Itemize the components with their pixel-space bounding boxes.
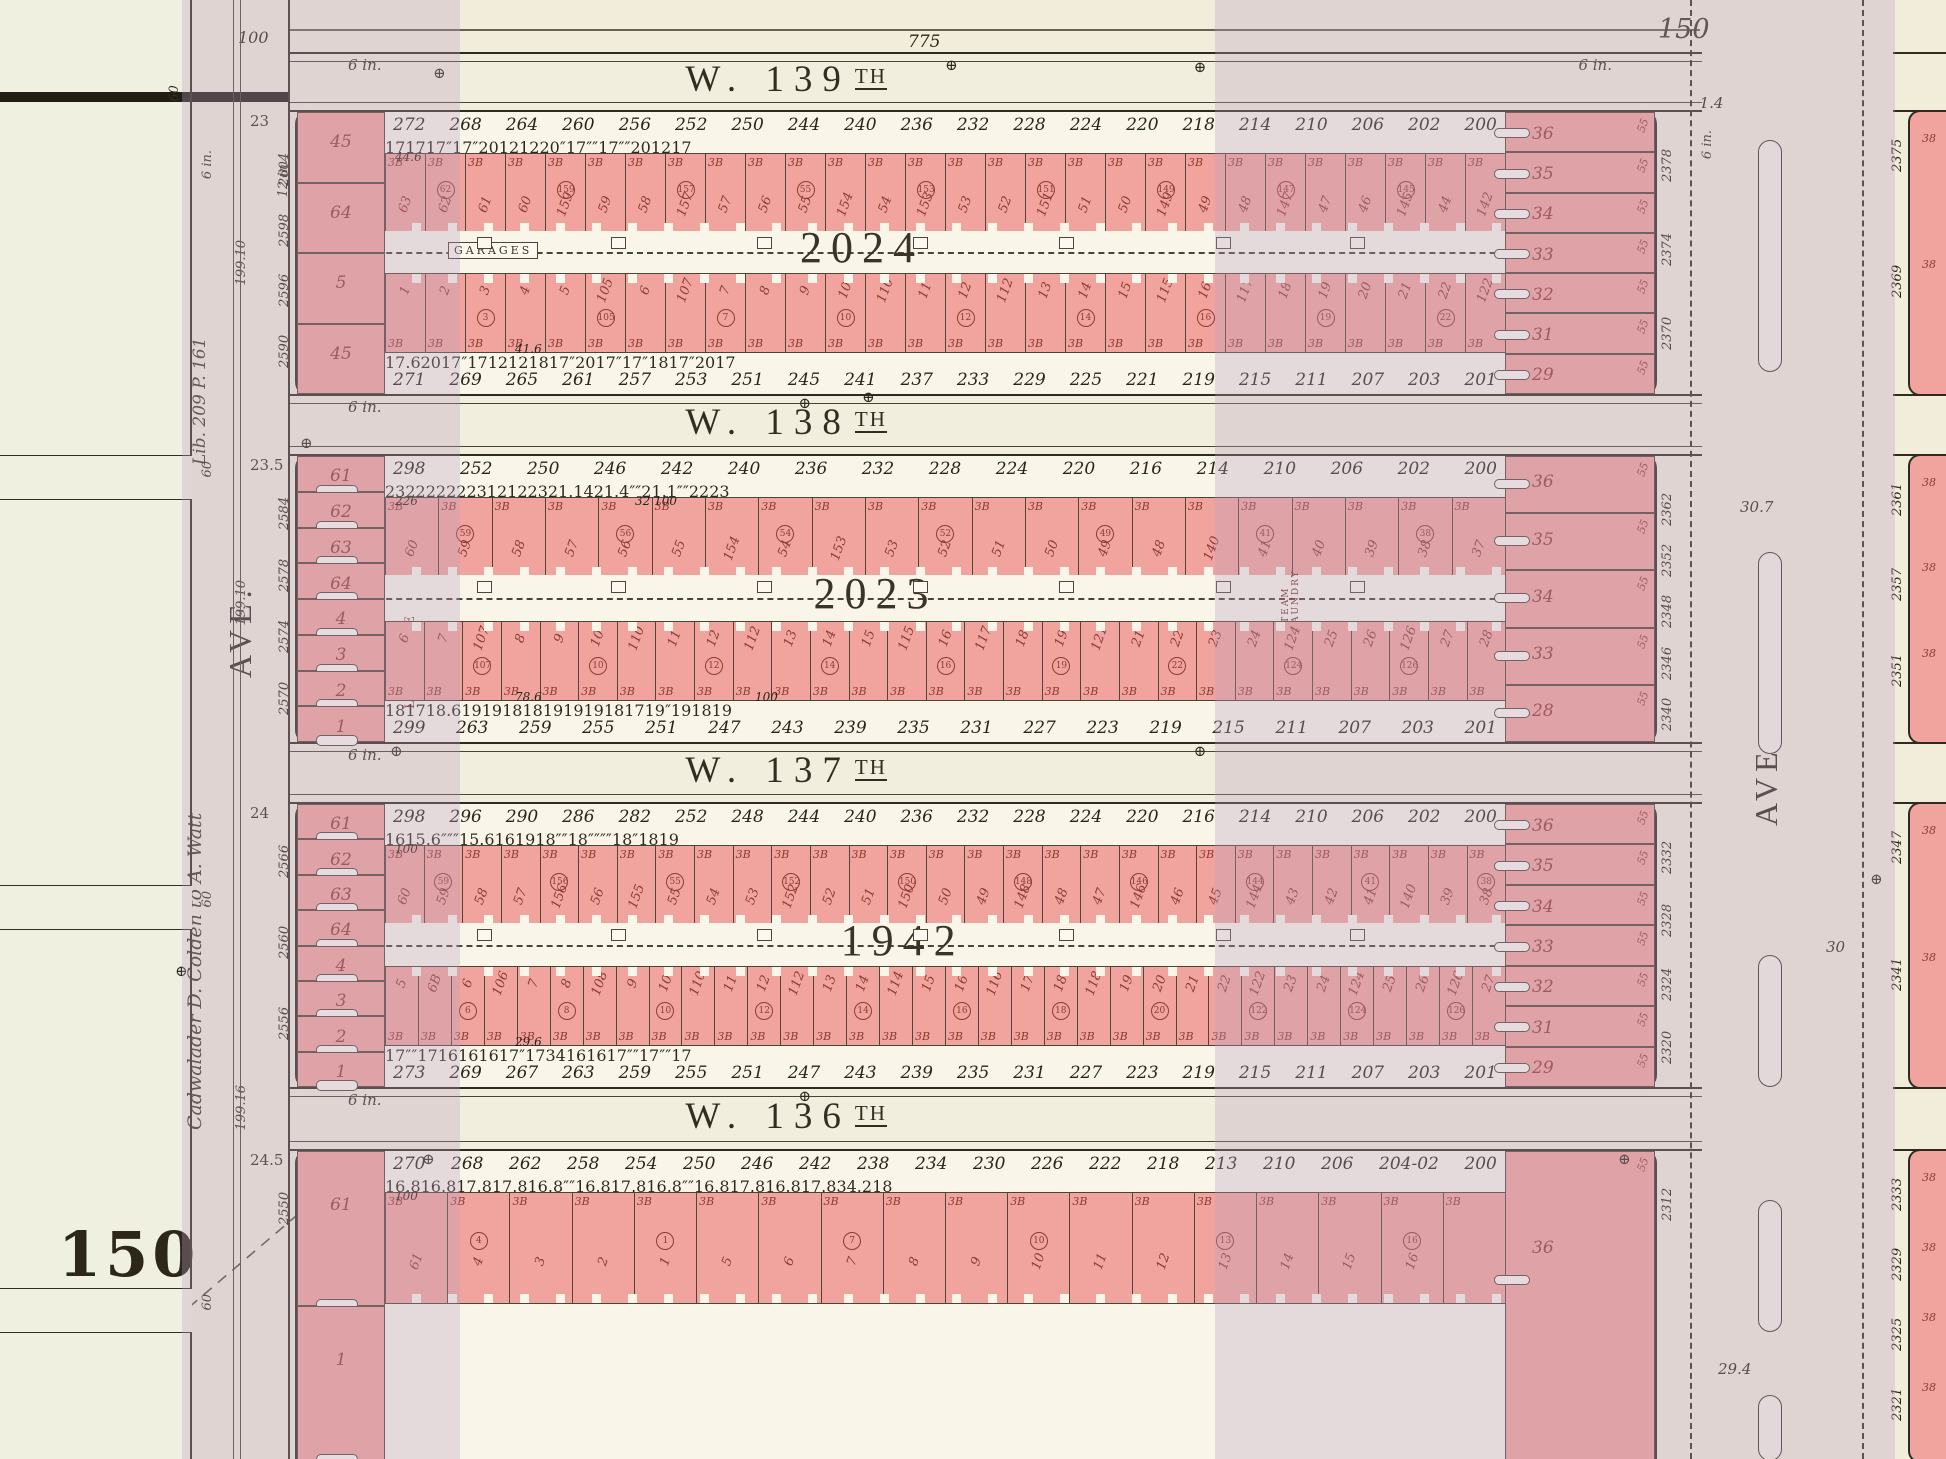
lot-width: 19 — [659, 830, 679, 845]
lot-number: 61 — [472, 184, 499, 226]
corner-lot-number: 62 — [298, 502, 384, 522]
rowhouse-lot: 3B152152 — [771, 846, 810, 924]
rowhouse-lot: 3B4949 — [1078, 498, 1131, 576]
right-avenue-east-curb — [1862, 0, 1864, 1459]
house-number: 221 — [1126, 370, 1158, 390]
east-frontage-number: 2329 — [1890, 1229, 1905, 1281]
lot-width: 16 — [458, 1046, 478, 1061]
street-east-stub — [1893, 1087, 1946, 1151]
house-number: 273 — [393, 1063, 425, 1083]
rowhouse-lot: 3B63 — [385, 154, 425, 232]
lot-width-row-top: 16.816.817.817.816.8″″16.817.816.8″″16.8… — [385, 1177, 1505, 1192]
block-dim-label: 100 — [395, 842, 418, 856]
unit-type-label: 3B — [761, 500, 776, 513]
unit-type-label: 3B — [1315, 685, 1330, 698]
house-number: 203 — [1408, 1063, 1440, 1083]
sanitation-mark: 8 — [558, 1002, 576, 1020]
corner-lot: 3155 — [1505, 1006, 1655, 1046]
rowhouse-lot: 3B115 — [1145, 274, 1185, 352]
lot-number: 47 — [1312, 184, 1339, 226]
unit-type-label: 3B — [1135, 1195, 1150, 1208]
rowhouse-lot: 3B28 — [1467, 622, 1506, 700]
unit-type-label: 3B — [495, 500, 510, 513]
corner-lot: 1 — [297, 1306, 385, 1459]
east-lot-label: 38 — [1922, 824, 1936, 837]
rowhouse-lot: 3B45 — [1196, 846, 1235, 924]
rear-structure — [1059, 929, 1074, 941]
house-number: 240 — [844, 807, 876, 827]
lot-width: 16 — [586, 1046, 606, 1061]
lot-number: 58 — [469, 876, 496, 916]
lot-number: 59 — [592, 184, 619, 226]
unit-type-label: 3B — [581, 685, 596, 698]
house-number: 224 — [1070, 115, 1102, 135]
unit-type-label: 3B — [1068, 156, 1083, 169]
corner-lot-number: 3 — [298, 991, 384, 1011]
street-name-suffix: TH — [855, 64, 887, 90]
unit-type-label: 3B — [868, 337, 883, 350]
rowhouse-lot: 3B47 — [1305, 154, 1345, 232]
bay-window-shape — [316, 1080, 358, 1091]
monument-icon: ⊕ — [862, 388, 875, 406]
corner-lot-number: 35 — [1506, 530, 1680, 550]
street-name-w138: W. 138TH — [685, 401, 887, 444]
rowhouse-lot: 3B66 — [451, 967, 484, 1045]
left-avenue-center-line — [240, 0, 241, 1459]
east-frontage-number: 2351 — [1890, 635, 1905, 687]
lot-number: 12 — [1146, 1230, 1181, 1293]
lot-number: 3 — [524, 1230, 559, 1293]
house-number: 258 — [567, 1154, 599, 1174]
unit-type-label: 3B — [828, 337, 843, 350]
lot-width: 16.8 — [694, 1177, 730, 1192]
lot-width: 17.8 — [492, 1177, 528, 1192]
sanitation-mark: 16 — [1197, 309, 1215, 327]
sanitation-mark: 19 — [1317, 309, 1335, 327]
house-number: 229 — [1013, 370, 1045, 390]
corner-lot-number: 29 — [1506, 1058, 1680, 1078]
monument-icon: ⊕ — [1870, 870, 1883, 888]
lot-width: 23 — [528, 482, 548, 497]
unit-type-label: 3B — [1135, 500, 1150, 513]
unit-type-label: 3B — [929, 685, 944, 698]
avenue-frontage-number: 2374 — [1660, 206, 1675, 266]
rowhouse-lot: 3B155 — [617, 846, 656, 924]
corner-lot-number: 62 — [298, 850, 384, 870]
lot-number: 157 — [672, 184, 699, 226]
block-dim-label: 41.6 — [515, 342, 542, 356]
house-number: 265 — [506, 370, 538, 390]
house-number: 214 — [1239, 115, 1271, 135]
unit-type-label: 3B — [1310, 1030, 1325, 1043]
atlas-map-plate: 150 150 775 100 60 Cadwalader D. Colden … — [0, 0, 1946, 1459]
bay-window-shape — [1494, 942, 1530, 952]
unit-type-label: 3B — [465, 685, 480, 698]
lot-width: 17 — [624, 701, 644, 716]
rowhouse-lot: 3B11 — [1069, 1193, 1131, 1303]
house-number: 269 — [449, 370, 481, 390]
lot-number: 153 — [912, 184, 939, 226]
sanitation-mark: 10 — [837, 309, 855, 327]
corner-lot-number: 64 — [298, 574, 384, 594]
lot-number: 42 — [1318, 876, 1345, 916]
unit-type-label: 3B — [915, 1030, 930, 1043]
unit-type-label: 3B — [543, 848, 558, 861]
east-lot-label: 38 — [1922, 1311, 1936, 1324]
unit-type-label: 3B — [813, 848, 828, 861]
house-number: 223 — [1086, 718, 1118, 738]
house-number: 251 — [645, 718, 677, 738]
unit-type-label: 3B — [948, 1195, 963, 1208]
unit-type-label: 3B — [1308, 156, 1323, 169]
unit-type-label: 3B — [548, 156, 563, 169]
monument-icon: ⊕ — [798, 1087, 811, 1105]
unit-type-label: 3B — [658, 848, 673, 861]
block-center-dashed-line — [326, 945, 1626, 947]
house-number: 203 — [1402, 718, 1434, 738]
rowhouse-lot: 3B51 — [1065, 154, 1105, 232]
rowhouse-lot: 3B148148 — [1003, 846, 1042, 924]
lot-number: 55 — [792, 184, 819, 226]
lot-number: 154 — [832, 184, 859, 226]
rear-structure — [913, 581, 928, 593]
corner-lot-number: 35 — [1506, 856, 1680, 876]
sanitation-mark: 18 — [1052, 1002, 1070, 1020]
house-number: 210 — [1264, 459, 1296, 479]
house-number: 256 — [619, 115, 651, 135]
rear-notch-strip — [385, 274, 1505, 283]
lot-number: 149 — [1152, 184, 1179, 226]
unit-type-label: 3B — [788, 337, 803, 350]
unit-type-label: 3B — [868, 500, 883, 513]
lot-number: 46 — [1352, 184, 1379, 226]
lot-number: 60 — [512, 184, 539, 226]
lot-number: 49 — [971, 876, 998, 916]
unit-type-label: 3B — [586, 1030, 601, 1043]
rear-structure — [1216, 237, 1231, 249]
sanitation-mark: 124 — [1348, 1002, 1366, 1020]
house-number: 248 — [731, 807, 763, 827]
unit-type-label: 3B — [1354, 848, 1369, 861]
house-number: 238 — [857, 1154, 889, 1174]
unit-type-label: 3B — [1010, 1195, 1025, 1208]
east-frontage-number: 2333 — [1890, 1159, 1905, 1211]
lot-width: 12 — [507, 482, 527, 497]
unit-type-label: 3B — [468, 156, 483, 169]
unit-type-label: 3B — [1354, 685, 1369, 698]
rowhouse-lot: 3B6 — [385, 622, 424, 700]
rowhouse-lot: 3B50 — [1025, 498, 1078, 576]
lot-number: 46 — [1164, 876, 1191, 916]
unit-type-label: 3B — [1045, 848, 1060, 861]
rear-structure — [477, 237, 492, 249]
corner-lot-column-east: 3655355534553355325531552955 — [1505, 804, 1655, 1087]
rowhouse-lot: 3B140 — [1389, 846, 1428, 924]
rowhouse-lot: 3B53 — [733, 846, 772, 924]
left-avenue-west-curb — [190, 0, 192, 1459]
rowhouse-lot: 3B26 — [1406, 967, 1439, 1045]
avenue-median-island — [1758, 1200, 1782, 1332]
unit-type-label: 3B — [1315, 848, 1330, 861]
house-number: 235 — [897, 718, 929, 738]
unit-type-label: 3B — [620, 685, 635, 698]
lot-width: 16.8 — [646, 1177, 682, 1192]
house-number: 259 — [519, 718, 551, 738]
lot-number: 15 — [1332, 1230, 1367, 1293]
bay-window-shape — [1494, 536, 1530, 546]
east-lot-label: 38 — [1922, 258, 1936, 271]
house-number: 296 — [449, 807, 481, 827]
lot-width-row-bottom: 181718.619191818191919181719″191819 — [385, 701, 1505, 716]
block-dim-label: 29.6 — [515, 1035, 542, 1049]
unit-type-label: 3B — [1045, 685, 1060, 698]
east-frontage-number: 2369 — [1890, 246, 1905, 298]
corner-lot-column-east: 3655 — [1505, 1151, 1655, 1459]
house-number: 202 — [1398, 459, 1430, 479]
lot-width: 12 — [519, 138, 539, 153]
unit-type-label: 3B — [824, 1195, 839, 1208]
unit-type-label: 3B — [1113, 1030, 1128, 1043]
unit-type-label: 3B — [427, 685, 442, 698]
bay-window-shape — [1494, 209, 1530, 219]
rowhouse-lot: 3B11 — [655, 622, 694, 700]
lot-number: 49 — [1192, 184, 1219, 226]
corner-lot: 3255 — [1505, 273, 1655, 313]
rowhouse-lot: 3B9 — [945, 1193, 1007, 1303]
rowhouse-lot: 3B116 — [978, 967, 1011, 1045]
lot-number: 60 — [391, 876, 418, 916]
west-street-stub — [0, 455, 192, 500]
corner-lot: 3 — [297, 635, 385, 671]
street-name-text: W. 138 — [685, 402, 851, 443]
bay-window-shape — [316, 1454, 358, 1459]
rowhouse-lot: 3B1818 — [1044, 967, 1077, 1045]
corner-lot: 3555 — [1505, 513, 1655, 570]
rowhouse-lot: 3B60 — [505, 154, 545, 232]
rowhouse-lot: 3B4 — [505, 274, 545, 352]
east-frontage-number: 2347 — [1890, 812, 1905, 864]
rowhouse-lot: 3B26 — [1351, 622, 1390, 700]
rowhouse-lot: 3B6262 — [425, 154, 465, 232]
house-number: 299 — [393, 718, 425, 738]
block-dim-label: 78.6 — [515, 690, 542, 704]
unit-type-label: 3B — [601, 500, 616, 513]
rowhouse-lot: 3B25 — [1312, 622, 1351, 700]
rowhouse-lot: 3B53 — [945, 154, 985, 232]
rowhouse-lot: 3B110 — [617, 622, 656, 700]
rowhouse-lot: 3B5555 — [655, 846, 694, 924]
sanitation-mark: 7 — [717, 309, 735, 327]
rowhouse-lot: 3B154 — [825, 154, 865, 232]
house-number: 250 — [527, 459, 559, 479]
rowhouse-lot: 3B1010 — [1007, 1193, 1069, 1303]
east-lot-label: 38 — [1922, 132, 1936, 145]
house-number: 206 — [1331, 459, 1363, 479]
lot-number: 56 — [584, 876, 611, 916]
rowhouse-lot: 3B105105 — [585, 274, 625, 352]
house-number: 200 — [1464, 807, 1496, 827]
corner-lot-number: 34 — [1506, 897, 1680, 917]
unit-type-label: 3B — [1148, 156, 1163, 169]
street-name-text: W. 137 — [685, 750, 851, 791]
unit-type-label: 3B — [1199, 848, 1214, 861]
lot-depth-199-16: 199.16 — [234, 1085, 249, 1131]
rowhouse-lot: 3B2 — [572, 1193, 634, 1303]
rowhouse-lot: 3B122122 — [1241, 967, 1274, 1045]
corner-lot: 1 — [297, 706, 385, 742]
rowhouse-lot: 3B124124 — [1340, 967, 1373, 1045]
rowhouse-lot: 3B157157 — [665, 154, 705, 232]
right-avenue-main-label: 6 in. — [1700, 130, 1715, 159]
rowhouse-lot: 3B46 — [1345, 154, 1385, 232]
lot-width: 17 — [715, 353, 735, 368]
lot-width: 22 — [446, 482, 466, 497]
corner-lot-number: 2 — [298, 1027, 384, 1047]
rear-structure — [611, 581, 626, 593]
unit-type-label: 3B — [1081, 500, 1096, 513]
street-band-w139: W. 139TH6 in.6 in.⊕ — [290, 52, 1702, 112]
sanitation-mark: 14 — [821, 657, 839, 675]
water-main-label: 6 in. — [348, 398, 382, 416]
rowhouse-lot: 3B49 — [964, 846, 1003, 924]
house-number: 290 — [506, 807, 538, 827]
corner-lot-number: 63 — [298, 538, 384, 558]
sanitation-mark: 12 — [705, 657, 723, 675]
corner-lot-number: 31 — [1506, 1018, 1680, 1038]
unit-type-label: 3B — [465, 848, 480, 861]
house-number: 230 — [973, 1154, 1005, 1174]
house-number: 247 — [708, 718, 740, 738]
plate-number-top-right: 150 — [1658, 14, 1710, 45]
rowhouse-lot: 3B60 — [385, 498, 438, 576]
unit-type-label: 3B — [619, 1030, 634, 1043]
sanitation-mark: 107 — [473, 657, 491, 675]
rowhouse-lot: 3B43 — [1273, 846, 1312, 924]
rowhouse-lot: 3B112 — [985, 274, 1025, 352]
rowhouse-lot: 3B1010 — [825, 274, 865, 352]
rowhouse-lot: 3B — [1443, 1193, 1505, 1303]
rowhouse-lot: 3B13 — [771, 622, 810, 700]
avenue-frontage-number: 2328 — [1660, 877, 1675, 937]
sanitation-mark: 126 — [1447, 1002, 1465, 1020]
house-number: 286 — [562, 807, 594, 827]
lot-width: 17 — [639, 1046, 659, 1061]
avenue-median-island — [1758, 955, 1782, 1087]
rowhouse-lot: 3B145145 — [1385, 154, 1425, 232]
rowhouse-lot: 3B8 — [745, 274, 785, 352]
rowhouse-lot: 3B118 — [1077, 967, 1110, 1045]
rowhouse-lot: 3B24 — [1235, 622, 1274, 700]
corner-lot: 3 — [297, 981, 385, 1016]
avenue-median-island — [1758, 140, 1782, 372]
rowhouse-lot: 3B15 — [1318, 1193, 1380, 1303]
house-number: 263 — [562, 1063, 594, 1083]
unit-type-label: 3B — [967, 685, 982, 698]
house-number: 202 — [1408, 807, 1440, 827]
lot-width: 19 — [671, 701, 691, 716]
avenue-frontage-number: 2324 — [1660, 941, 1675, 1001]
corner-lot-number: 45 — [298, 132, 384, 152]
unit-type-label: 3B — [1188, 500, 1203, 513]
rowhouse-band-south: 3B13B23B333B43B53B1051053B63B1073B773B83… — [385, 273, 1505, 353]
rowhouse-lot: 3B107 — [665, 274, 705, 352]
rear-structure — [1216, 581, 1231, 593]
corner-lot: 61 — [297, 804, 385, 839]
rowhouse-lot: 3B1212 — [945, 274, 985, 352]
unit-type-label: 3B — [1442, 1030, 1457, 1043]
house-number: 272 — [393, 115, 425, 135]
bay-window-shape — [1494, 169, 1530, 179]
house-number: 253 — [675, 370, 707, 390]
unit-type-label: 3B — [1028, 156, 1043, 169]
unit-type-label: 3B — [788, 156, 803, 169]
house-number-row-bottom: 2712692652612572532512452412372332292252… — [393, 370, 1497, 390]
rear-structure — [757, 929, 772, 941]
street-east-stub — [1893, 742, 1946, 804]
frontage-total-dim: 775 — [908, 32, 940, 52]
lot-width: 21.4 — [594, 482, 630, 497]
rowhouse-lot: 3B124124 — [1273, 622, 1312, 700]
corner-lot: 5 — [297, 253, 385, 324]
corner-lot-number: 1 — [298, 1062, 384, 1082]
rowhouse-lot: 3B18 — [1003, 622, 1042, 700]
house-number: 270 — [393, 1154, 425, 1174]
lot-width: 17 — [467, 353, 487, 368]
monument-icon: ⊕ — [175, 962, 188, 980]
unit-type-label: 3B — [1179, 1030, 1194, 1043]
rowhouse-lot: 3B1010 — [649, 967, 682, 1045]
house-number: 228 — [929, 459, 961, 479]
rowhouse-lot: 3B60 — [385, 846, 424, 924]
house-number: 206 — [1352, 115, 1384, 135]
block-dim-label: 100 — [395, 1189, 418, 1203]
unit-type-label: 3B — [1072, 1195, 1087, 1208]
house-number: 282 — [619, 807, 651, 827]
rowhouse-lot: 3B77 — [821, 1193, 883, 1303]
rowhouse-lot: 3B23 — [1196, 622, 1235, 700]
lot-width: 17 — [671, 138, 691, 153]
water-main-label-right: 6 in. — [1578, 56, 1612, 74]
rear-structure — [757, 581, 772, 593]
rowhouse-lot: 3B147147 — [1265, 154, 1305, 232]
corner-lot: 3655 — [1505, 804, 1655, 844]
house-number: 219 — [1182, 370, 1214, 390]
lot-width: 17 — [598, 138, 618, 153]
rowhouse-lot: 3B61 — [385, 1193, 447, 1303]
house-number: 216 — [1182, 807, 1214, 827]
house-number: 252 — [675, 115, 707, 135]
rowhouse-band-south: 3B63B73B1071073B83B93B10103B1103B113B121… — [385, 621, 1505, 701]
unit-type-label: 3B — [948, 156, 963, 169]
house-number: 214 — [1197, 459, 1229, 479]
house-number: 244 — [788, 807, 820, 827]
house-number: 260 — [562, 115, 594, 135]
house-number: 210 — [1263, 1154, 1295, 1174]
lot-width: 12 — [488, 353, 508, 368]
house-number-row-bottom: 2732692672632592552512472432392352312272… — [393, 1063, 1497, 1083]
lot-width: 18 — [604, 701, 624, 716]
lot-number: 52 — [816, 876, 843, 916]
lot-width: 22 — [689, 482, 709, 497]
lot-number: 48 — [1048, 876, 1075, 916]
corner-lot: 3455 — [1505, 570, 1655, 627]
street-curb-line — [290, 1141, 1702, 1142]
house-number: 232 — [957, 115, 989, 135]
lot-width: 18 — [385, 701, 405, 716]
unit-type-label: 3B — [553, 1030, 568, 1043]
lot-width: 20 — [695, 353, 715, 368]
corner-lot-number: 61 — [298, 814, 384, 834]
